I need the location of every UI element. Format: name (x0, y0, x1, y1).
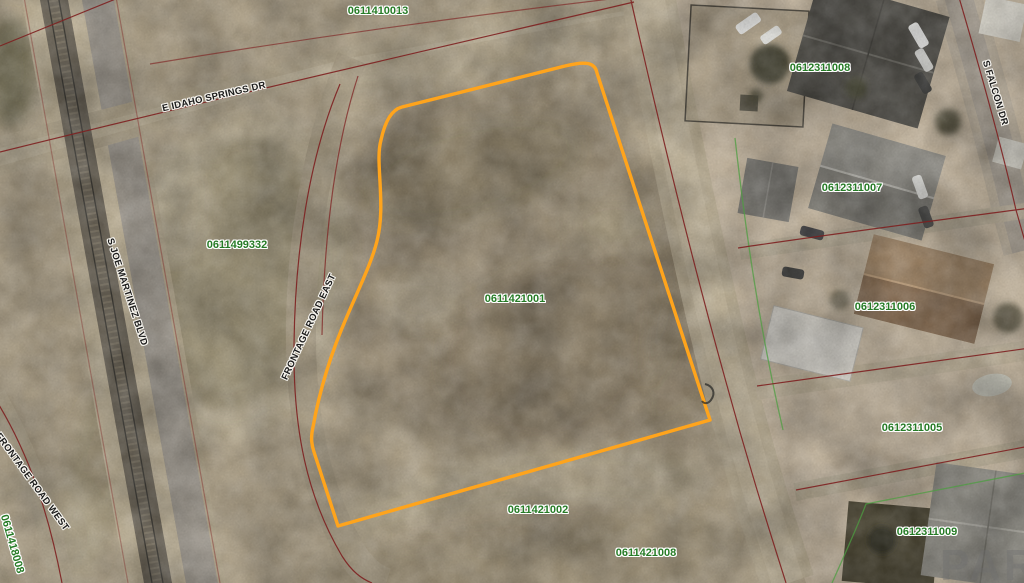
aerial-imagery[interactable] (0, 0, 1024, 583)
photo-grain (0, 0, 1024, 583)
map-canvas[interactable]: PAR 061141001306123110080611499332061231… (0, 0, 1024, 583)
